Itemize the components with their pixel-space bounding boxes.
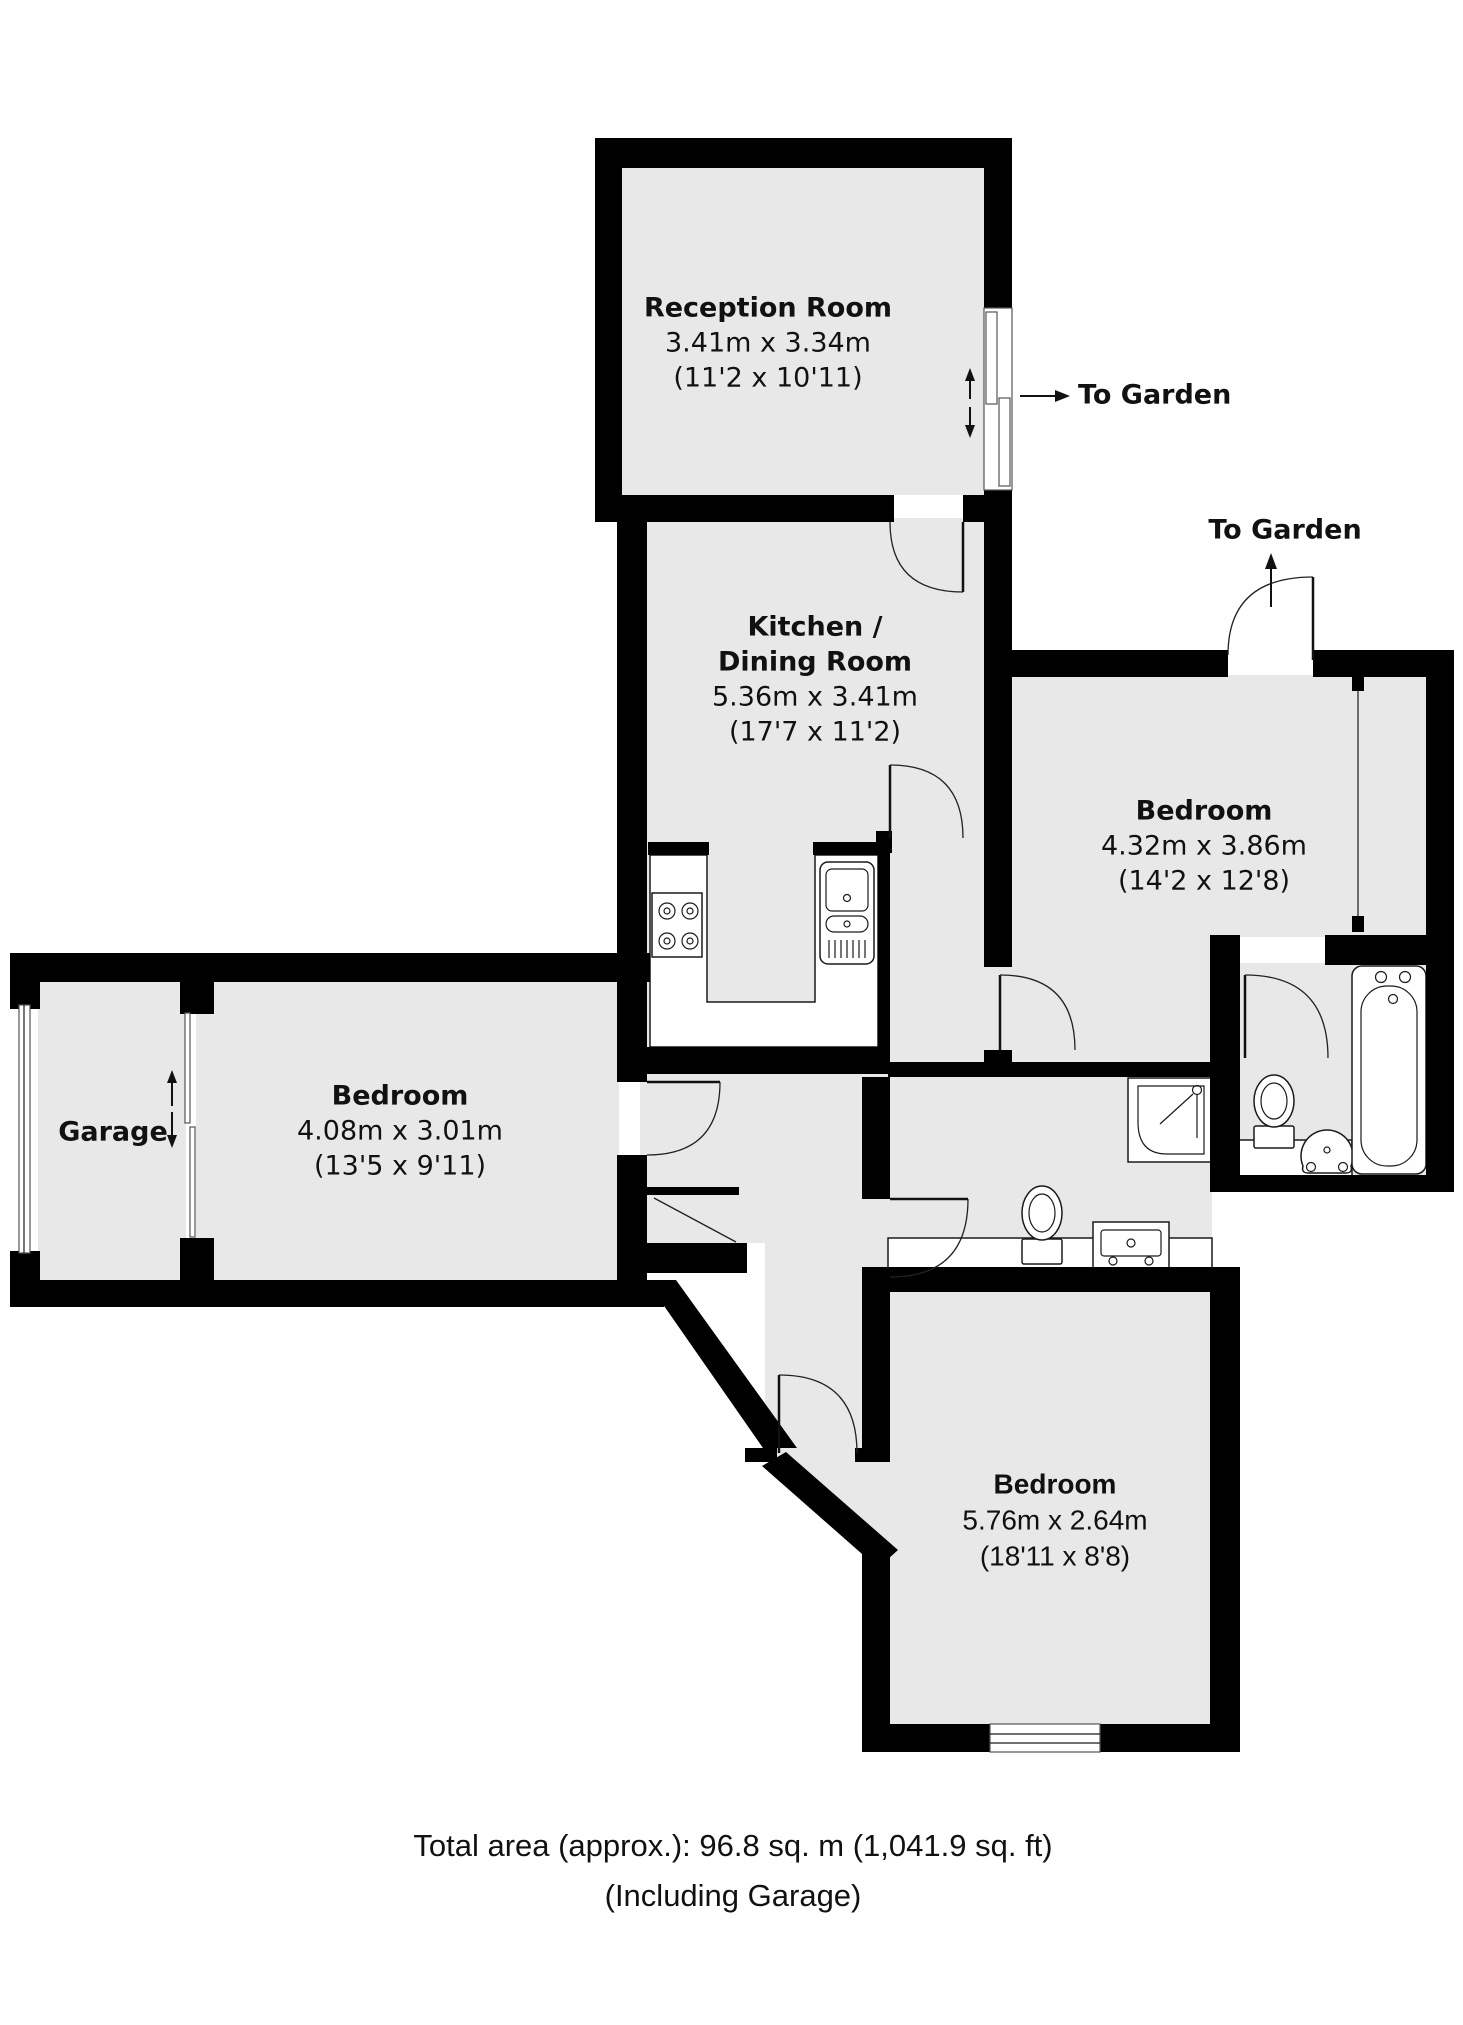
total-area-line: Total area (approx.): 96.8 sq. m (1,041.… bbox=[413, 1828, 1052, 1863]
bedroom-left-name: Bedroom bbox=[332, 1081, 469, 1112]
wall-shower-room-top bbox=[888, 1062, 1212, 1077]
wall-garage-left-bottom bbox=[10, 1251, 40, 1307]
wall-hall-door-jamb-left bbox=[745, 1448, 777, 1462]
wall-closet-top bbox=[647, 1187, 739, 1195]
kitchen-name-line2: Dining Room bbox=[718, 647, 912, 678]
bedroom-right-name: Bedroom bbox=[1136, 796, 1273, 827]
wall-hall-door-jamb-right bbox=[855, 1448, 890, 1462]
wall-garage-slide-stub-bottom bbox=[180, 1238, 214, 1280]
wall-shower-bottom bbox=[862, 1267, 1240, 1292]
shower-icon bbox=[1128, 1078, 1212, 1162]
wall-bedroom-left-right-lower bbox=[617, 1155, 647, 1307]
floorplan-page: Reception Room 3.41m x 3.34m (11'2 x 10'… bbox=[0, 0, 1463, 2025]
to-garden-right-label: To Garden bbox=[1208, 515, 1361, 546]
kitchen-dims-ft: (17'7 x 11'2) bbox=[729, 717, 901, 748]
wall-garage-left-top bbox=[10, 953, 40, 1009]
wall-garage-slide-stub-top bbox=[180, 982, 214, 1014]
including-garage-line: (Including Garage) bbox=[605, 1878, 862, 1913]
wall-kitchen-right-thin bbox=[878, 853, 890, 1074]
wardrobe-stub-top bbox=[1352, 677, 1364, 691]
vanity-unit-icon bbox=[1093, 1222, 1169, 1268]
stove-icon bbox=[652, 893, 702, 957]
bedroom-bottom-dims-ft: (18'11 x 8'8) bbox=[980, 1540, 1130, 1571]
wall-left-bottom bbox=[10, 1280, 664, 1307]
reception-dims-m: 3.41m x 3.34m bbox=[665, 328, 871, 359]
window-bedroom-bottom bbox=[990, 1724, 1100, 1752]
bedroom-left-dims-ft: (13'5 x 9'11) bbox=[314, 1151, 486, 1182]
wall-bedroom-left-door-stub bbox=[617, 1074, 647, 1082]
bathtub-icon bbox=[1352, 966, 1426, 1174]
bedroom-bottom-name: Bedroom bbox=[994, 1468, 1117, 1499]
reception-name: Reception Room bbox=[644, 293, 892, 324]
bedroom-right-dims-ft: (14'2 x 12'8) bbox=[1118, 866, 1290, 897]
wall-bedroom-bottom-right bbox=[1210, 1292, 1240, 1752]
wall-reception-right-lower bbox=[984, 488, 1012, 742]
kitchen-dims-m: 5.36m x 3.41m bbox=[712, 682, 918, 713]
bedroom-bottom-dims-m: 5.76m x 2.64m bbox=[962, 1504, 1147, 1535]
bathroom-sink-icon bbox=[1301, 1130, 1353, 1173]
wall-bathroom-top bbox=[1325, 935, 1454, 965]
bedroom-left-dims-m: 4.08m x 3.01m bbox=[297, 1116, 503, 1147]
garage-name: Garage bbox=[58, 1117, 168, 1148]
wardrobe-stub-bottom bbox=[1352, 916, 1364, 932]
kitchen-sink-icon bbox=[820, 862, 874, 964]
kitchen-name-line1: Kitchen / bbox=[747, 612, 882, 643]
wall-kitchen-left bbox=[617, 518, 647, 1074]
footer: Total area (approx.): 96.8 sq. m (1,041.… bbox=[413, 1828, 1052, 1913]
wall-reception-top bbox=[595, 138, 1012, 168]
wall-left-top bbox=[10, 953, 650, 982]
garden-annotations: To Garden To Garden bbox=[1020, 380, 1362, 608]
wall-bedroom-bottom-bottom-right bbox=[1100, 1724, 1240, 1752]
wall-bathroom-bottom bbox=[1210, 1175, 1454, 1192]
wall-bedroom-bottom-bottom-left bbox=[862, 1724, 990, 1752]
wall-bedroom-right-left-stub bbox=[984, 1050, 1012, 1064]
kitchen-counter-edge-right bbox=[813, 842, 878, 855]
wall-bedroom-right-top-left bbox=[1012, 650, 1228, 677]
wall-shower-left-lower bbox=[862, 1279, 890, 1450]
wall-reception-kitchen-divider bbox=[617, 495, 894, 522]
reception-dims-ft: (11'2 x 10'11) bbox=[673, 363, 862, 394]
floorplan-drawing: Reception Room 3.41m x 3.34m (11'2 x 10'… bbox=[0, 0, 1463, 2025]
bedroom-right-dims-m: 4.32m x 3.86m bbox=[1101, 831, 1307, 862]
wall-kitchen-bottom bbox=[633, 1047, 890, 1074]
wall-bedroom-bottom-left bbox=[862, 1550, 890, 1752]
wall-bedroom-right-left bbox=[984, 742, 1012, 967]
bathroom-toilet-icon bbox=[1254, 1075, 1294, 1148]
wall-reception-left bbox=[595, 138, 622, 522]
kitchen-counter-edge-left bbox=[648, 842, 709, 855]
ensuite-toilet-icon bbox=[1022, 1186, 1062, 1264]
wall-bathroom-left bbox=[1210, 935, 1240, 1192]
wall-reception-kitchen-divider-stub bbox=[963, 495, 1012, 522]
to-garden-top-label: To Garden bbox=[1078, 380, 1231, 411]
wall-shower-left-upper bbox=[862, 1077, 890, 1199]
garage-door bbox=[19, 1005, 30, 1253]
wall-closet-bottom bbox=[635, 1243, 747, 1273]
wall-right-exterior bbox=[1426, 650, 1454, 1190]
wall-reception-right-upper bbox=[984, 138, 1012, 310]
